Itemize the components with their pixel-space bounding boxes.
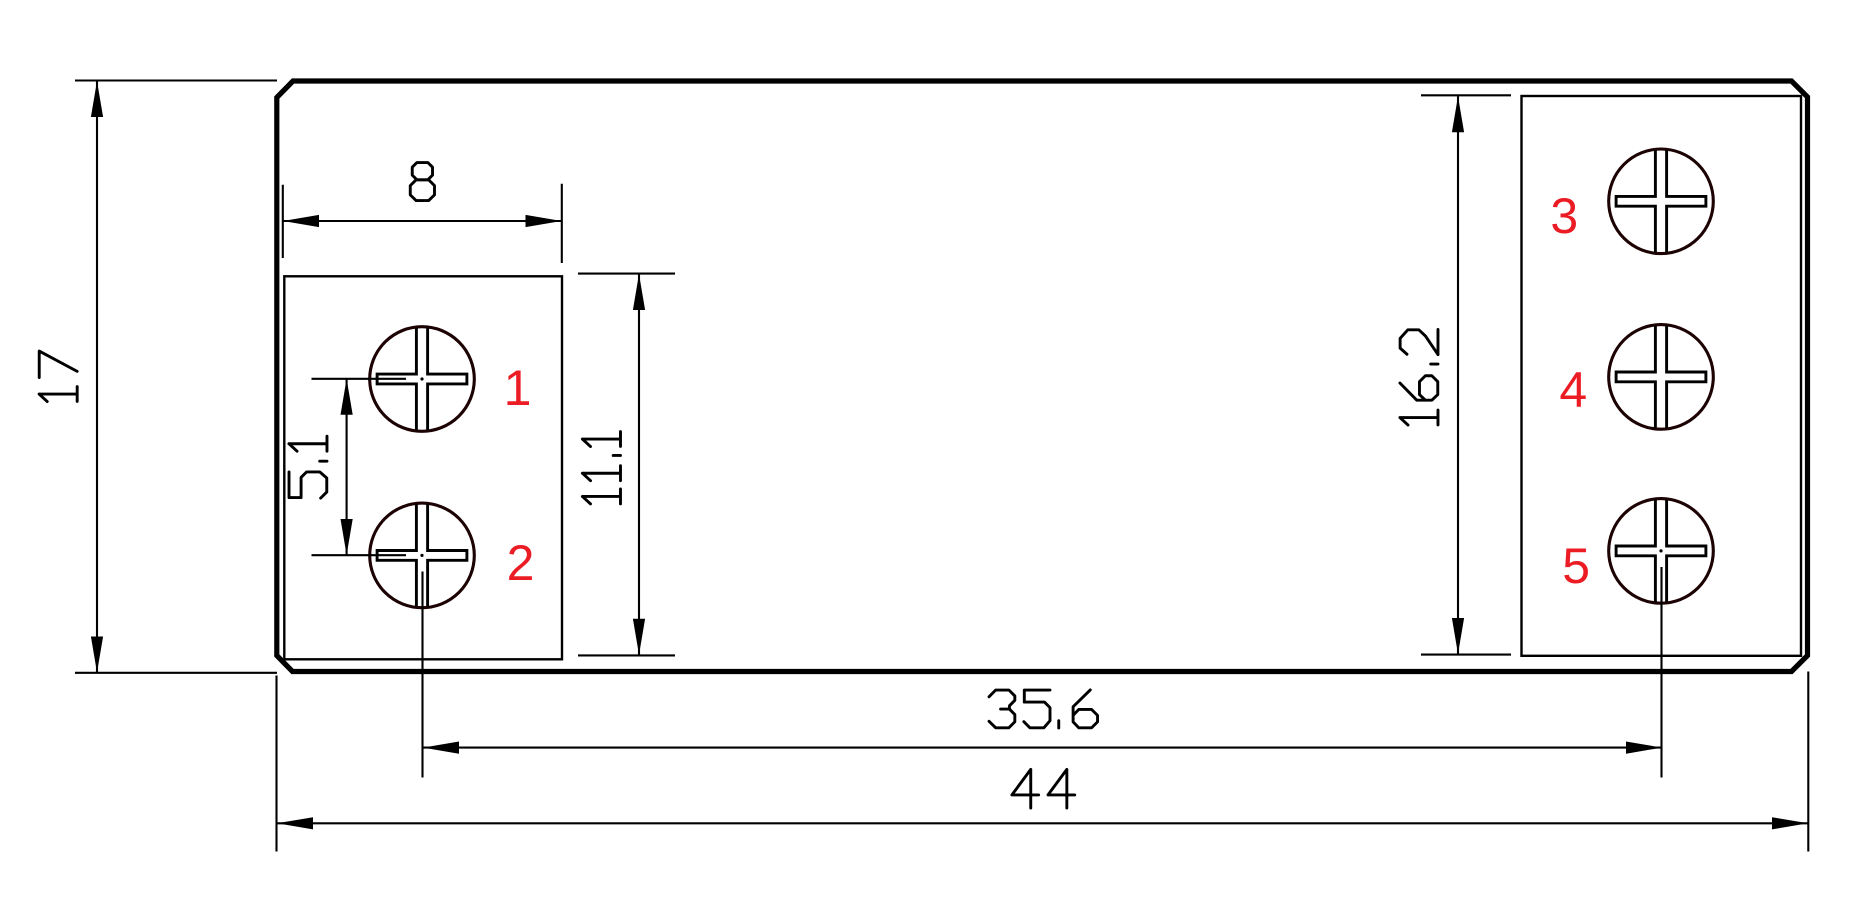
svg-text:1: 1 xyxy=(504,360,532,416)
svg-text:3: 3 xyxy=(1550,188,1578,244)
svg-text:5: 5 xyxy=(1562,538,1590,594)
svg-text:4: 4 xyxy=(1559,362,1587,418)
svg-text:2: 2 xyxy=(507,535,535,591)
